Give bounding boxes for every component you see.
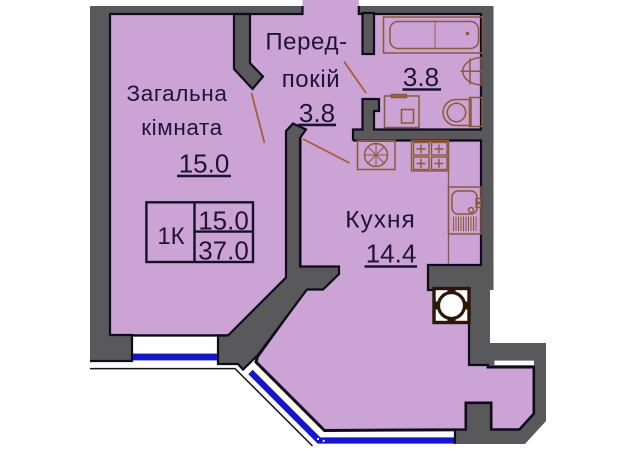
svg-text:14.4: 14.4 [366,238,417,268]
svg-text:15.0: 15.0 [179,149,230,179]
svg-text:кімната: кімната [141,115,223,140]
svg-text:37.0: 37.0 [198,236,249,266]
svg-text:Загальна: Загальна [127,81,228,106]
svg-text:3.8: 3.8 [403,62,439,92]
svg-text:3.8: 3.8 [299,98,335,128]
svg-text:1К: 1К [157,223,184,250]
svg-text:Перед-: Перед- [265,29,347,56]
svg-text:15.0: 15.0 [198,205,249,235]
svg-text:Кухня: Кухня [345,207,416,234]
svg-text:покій: покій [282,66,341,93]
